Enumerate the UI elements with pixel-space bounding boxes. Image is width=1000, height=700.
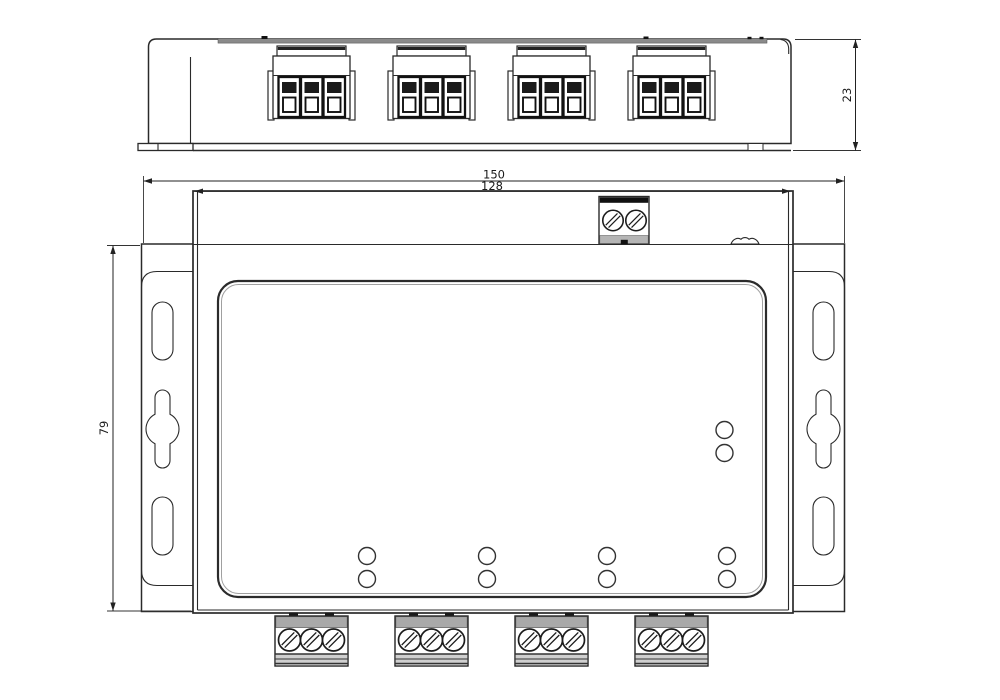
output-terminal-block-1: [275, 613, 348, 667]
side-terminal-block-1: [268, 46, 355, 120]
side-terminal-block-3: [508, 46, 595, 120]
dim-device-depth-label: 23: [840, 88, 854, 103]
output-terminal-block-3: [515, 613, 588, 667]
technical-drawing-page: 23: [0, 0, 1000, 700]
side-terminal-block-2: [388, 46, 475, 120]
cable-bump: [731, 238, 759, 244]
side-terminal-block-4: [628, 46, 715, 120]
side-top-strip: [218, 38, 767, 43]
output-terminal-block-4: [635, 613, 708, 667]
power-terminal-block: [599, 197, 649, 245]
mounting-slot: [813, 497, 834, 555]
side-top-clip-mark: [760, 37, 764, 39]
mounting-slot: [813, 302, 834, 360]
side-top-clip-mark: [644, 37, 649, 40]
side-plate-tab: [138, 144, 193, 151]
side-top-clip-mark: [748, 37, 752, 39]
mounting-slot: [152, 497, 173, 555]
dim-body-width-label: 128: [481, 179, 503, 193]
output-terminal-block-2: [395, 613, 468, 667]
dimension-drawing: 23: [0, 0, 1000, 700]
side-top-clip-mark: [262, 36, 268, 39]
side-bottom-foot: [748, 144, 763, 151]
dim-device-depth: 23: [793, 40, 861, 151]
side-view: 23: [138, 36, 861, 151]
mounting-slot: [152, 302, 173, 360]
front-view: 150 128 79: [97, 168, 845, 667]
dim-plate-height-label: 79: [97, 421, 111, 436]
